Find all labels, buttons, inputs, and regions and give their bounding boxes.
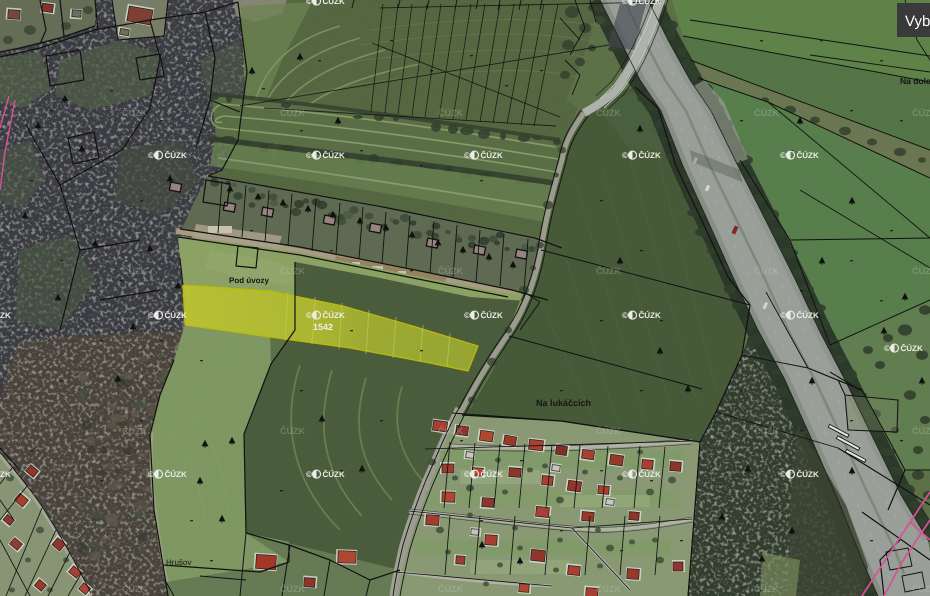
svg-text:Vybrat: Vybrat xyxy=(905,13,930,30)
